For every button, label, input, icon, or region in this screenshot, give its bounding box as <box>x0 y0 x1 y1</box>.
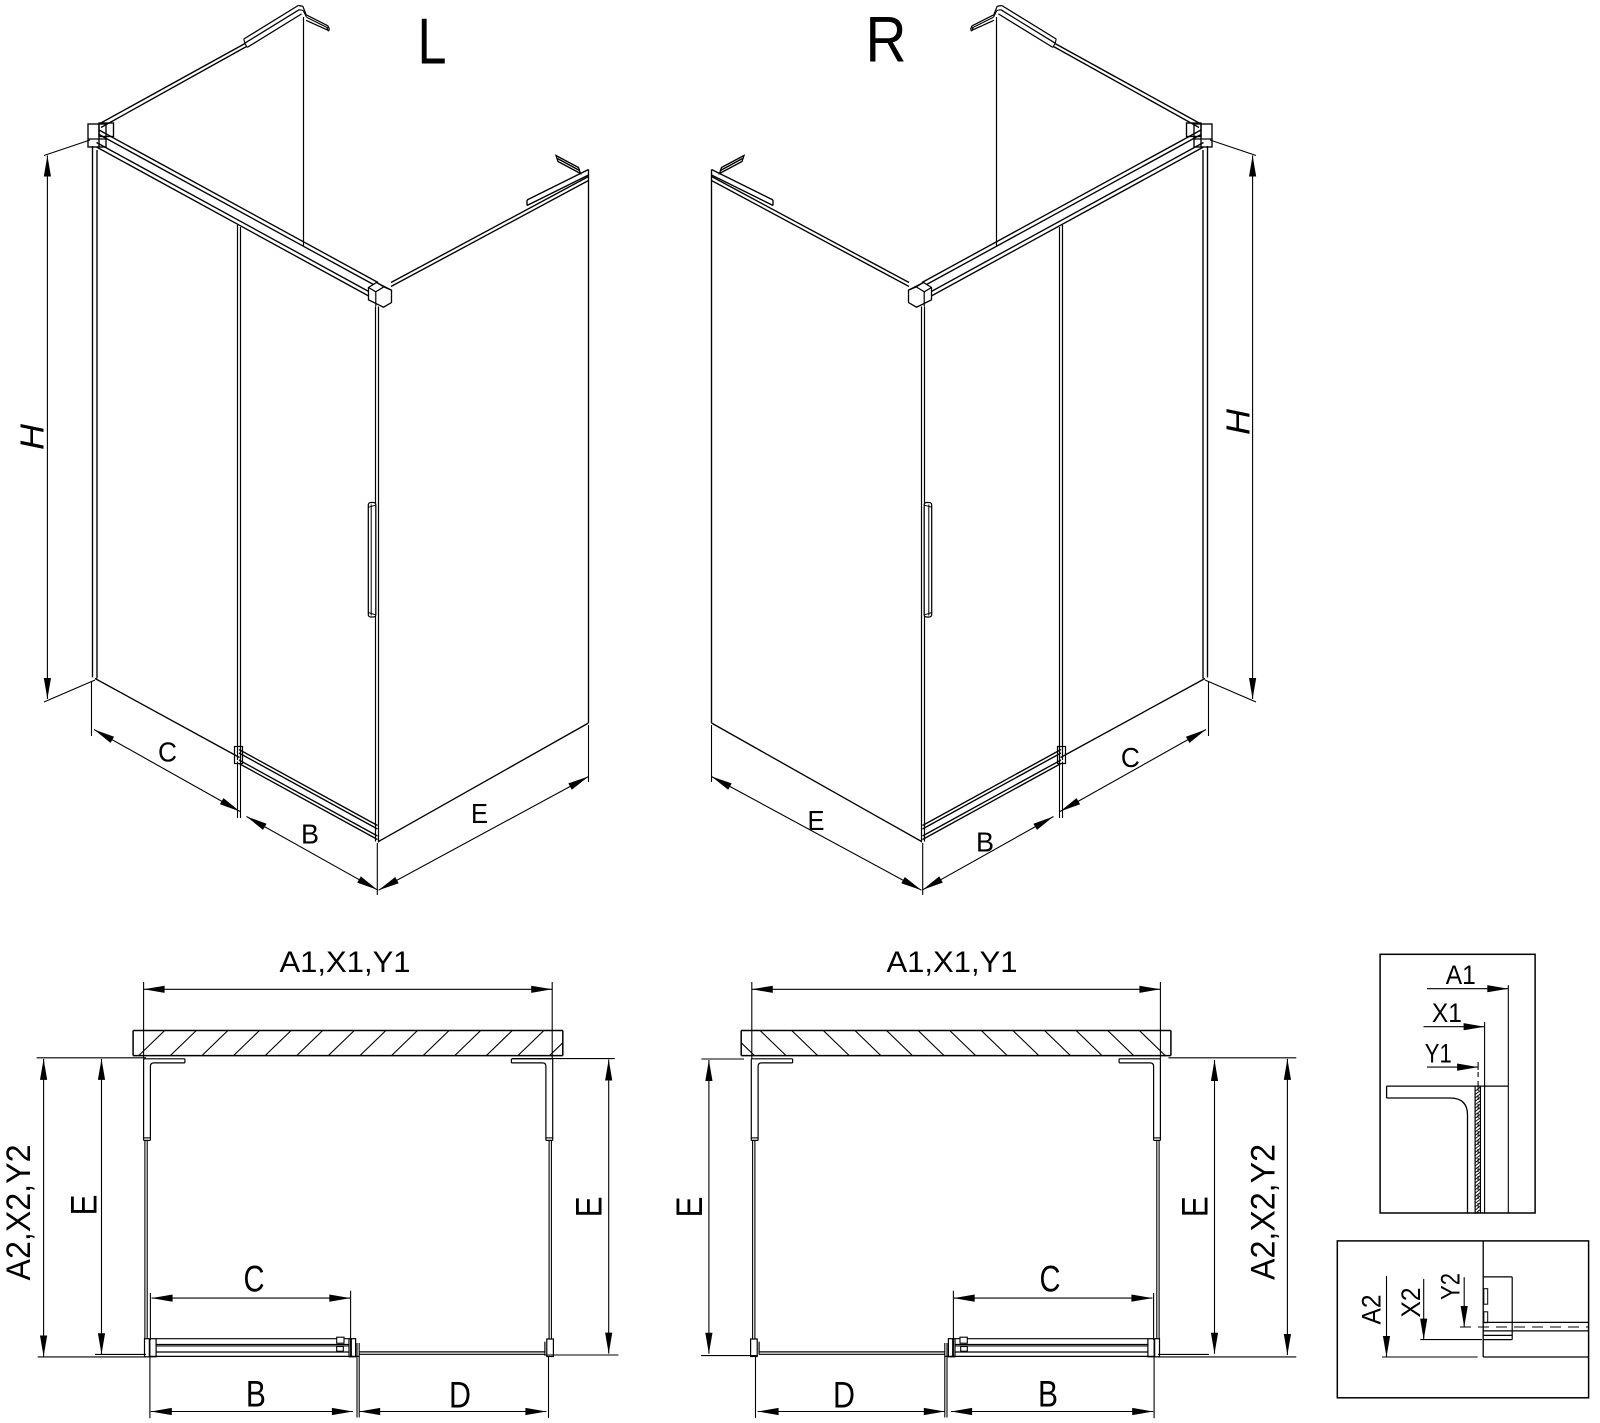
svg-text:B: B <box>976 827 994 858</box>
svg-text:H: H <box>1220 409 1257 435</box>
svg-text:E: E <box>64 1195 105 1216</box>
svg-text:C: C <box>244 1259 265 1300</box>
svg-text:A1: A1 <box>1446 960 1476 990</box>
svg-text:D: D <box>449 1375 471 1416</box>
svg-text:X2: X2 <box>1396 1288 1426 1318</box>
svg-text:A1,X1,Y1: A1,X1,Y1 <box>887 946 1018 979</box>
svg-text:B: B <box>1038 1374 1058 1415</box>
svg-text:A2,X2,Y2: A2,X2,Y2 <box>0 1145 38 1281</box>
svg-text:Y2: Y2 <box>1436 1273 1466 1300</box>
svg-text:B: B <box>301 818 319 849</box>
svg-text:E: E <box>808 805 825 836</box>
svg-text:E: E <box>471 798 488 829</box>
svg-text:C: C <box>1040 1259 1061 1300</box>
svg-text:B: B <box>246 1374 266 1415</box>
svg-text:L: L <box>418 5 447 78</box>
svg-text:A2,X2,Y2: A2,X2,Y2 <box>1245 1144 1283 1280</box>
svg-text:C: C <box>158 737 177 768</box>
svg-text:R: R <box>866 3 907 76</box>
svg-text:H: H <box>14 424 51 450</box>
svg-text:X1: X1 <box>1432 998 1462 1028</box>
svg-text:A1,X1,Y1: A1,X1,Y1 <box>280 946 411 979</box>
svg-text:Y1: Y1 <box>1425 1038 1452 1068</box>
svg-text:E: E <box>669 1197 710 1218</box>
svg-text:C: C <box>1121 742 1140 773</box>
svg-text:E: E <box>1175 1196 1216 1217</box>
svg-text:E: E <box>568 1196 609 1217</box>
svg-text:D: D <box>833 1375 855 1416</box>
svg-text:A2: A2 <box>1357 1295 1387 1325</box>
